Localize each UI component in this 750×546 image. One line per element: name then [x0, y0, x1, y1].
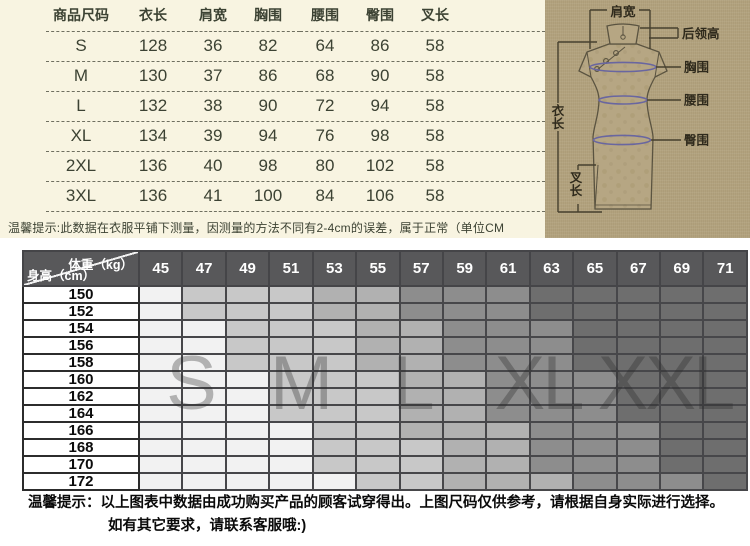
matrix-cell-xxl	[703, 456, 747, 473]
height-row-label: 160	[23, 371, 139, 388]
size-row: L1323890729458	[46, 91, 545, 121]
weight-col-header: 63	[530, 251, 573, 286]
size-table: 商品尺码衣长肩宽胸围腰围臀围叉长 S1283682648658M13037866…	[46, 0, 545, 212]
size-col-header: 商品尺码	[46, 0, 116, 31]
matrix-cell-xl	[486, 320, 529, 337]
height-row-label: 158	[23, 354, 139, 371]
matrix-cell-m	[313, 371, 356, 388]
matrix-cell-s	[139, 405, 182, 422]
size-cell: 2XL	[46, 151, 116, 181]
matrix-cell-s	[139, 354, 182, 371]
matrix-cell-l	[486, 422, 529, 439]
matrix-cell-xxl	[703, 371, 747, 388]
matrix-cell-xl	[617, 473, 660, 490]
matrix-cell-l	[400, 320, 443, 337]
matrix-row: 154	[23, 320, 747, 337]
matrix-row: 152	[23, 303, 747, 320]
matrix-cell-xxl	[660, 354, 703, 371]
matrix-cell-xl	[486, 371, 529, 388]
size-cell: 58	[410, 31, 460, 61]
size-cell: 102	[350, 151, 410, 181]
height-weight-matrix: 体重（kg） 身高（cm） 45474951535557596163656769…	[22, 250, 748, 491]
matrix-cell-s	[313, 473, 356, 490]
weight-col-header: 45	[139, 251, 182, 286]
size-cell: 76	[300, 121, 350, 151]
size-col-header: 叉长	[410, 0, 460, 31]
matrix-cell-s	[182, 337, 225, 354]
matrix-cell-l	[400, 388, 443, 405]
matrix-cell-m	[400, 473, 443, 490]
matrix-body: 150152154156158160162164166168170172	[23, 286, 747, 490]
size-cell: 84	[300, 181, 350, 211]
matrix-cell-m	[226, 303, 269, 320]
matrix-cell-m	[356, 422, 399, 439]
size-cell: 36	[190, 31, 236, 61]
matrix-corner-cell: 体重（kg） 身高（cm）	[23, 251, 139, 286]
matrix-cell-m	[269, 337, 312, 354]
matrix-cell-s	[139, 371, 182, 388]
matrix-cell-xxl	[703, 422, 747, 439]
matrix-cell-xl	[573, 405, 616, 422]
matrix-cell-xl	[660, 473, 703, 490]
size-cell: 132	[116, 91, 190, 121]
matrix-cell-m	[313, 354, 356, 371]
size-row: S1283682648658	[46, 31, 545, 61]
matrix-cell-m	[269, 405, 312, 422]
matrix-cell-s	[226, 439, 269, 456]
size-cell: 90	[350, 61, 410, 91]
matrix-cell-xl	[530, 388, 573, 405]
matrix-cell-xxl	[660, 371, 703, 388]
size-cell: 38	[190, 91, 236, 121]
size-cell: 80	[300, 151, 350, 181]
row-spacer	[460, 181, 545, 211]
matrix-cell-xxl	[660, 456, 703, 473]
size-cell: 58	[410, 181, 460, 211]
matrix-cell-s	[269, 439, 312, 456]
garment-length-label: 衣长	[552, 103, 565, 131]
matrix-cell-l	[443, 439, 486, 456]
size-row: 2XL13640988010258	[46, 151, 545, 181]
matrix-cell-s	[182, 371, 225, 388]
matrix-cell-m	[400, 456, 443, 473]
matrix-cell-xxl	[617, 303, 660, 320]
matrix-cell-xl	[573, 439, 616, 456]
height-row-label: 172	[23, 473, 139, 490]
matrix-cell-xl	[486, 303, 529, 320]
size-cell: 39	[190, 121, 236, 151]
matrix-cell-s	[182, 388, 225, 405]
matrix-cell-xxl	[703, 405, 747, 422]
matrix-cell-l	[486, 473, 529, 490]
height-row-label: 168	[23, 439, 139, 456]
matrix-cell-xl	[486, 286, 529, 303]
matrix-cell-m	[313, 405, 356, 422]
matrix-cell-xl	[486, 388, 529, 405]
matrix-row: 162	[23, 388, 747, 405]
weight-col-header: 53	[313, 251, 356, 286]
matrix-cell-l	[400, 422, 443, 439]
matrix-cell-s	[226, 456, 269, 473]
height-row-label: 166	[23, 422, 139, 439]
matrix-cell-m	[356, 473, 399, 490]
matrix-cell-xl	[443, 286, 486, 303]
size-cell: 68	[300, 61, 350, 91]
matrix-cell-l	[443, 371, 486, 388]
matrix-cell-xxl	[703, 354, 747, 371]
matrix-cell-s	[226, 422, 269, 439]
matrix-cell-l	[443, 405, 486, 422]
size-cell: 86	[350, 31, 410, 61]
size-col-header: 肩宽	[190, 0, 236, 31]
matrix-cell-xl	[530, 371, 573, 388]
matrix-cell-l	[486, 456, 529, 473]
matrix-cell-xl	[486, 354, 529, 371]
bust-label: 胸围	[684, 60, 709, 75]
matrix-cell-xxl	[617, 286, 660, 303]
waist-label: 腰围	[683, 93, 709, 108]
size-col-header: 腰围	[300, 0, 350, 31]
size-cell: 58	[410, 91, 460, 121]
footer-note-line1: 温馨提示：以上图表中数据由成功购买产品的顾客试穿得出。上图尺码仅供参考，请根据自…	[28, 492, 743, 515]
height-row-label: 162	[23, 388, 139, 405]
size-cell: 136	[116, 151, 190, 181]
matrix-row: 160	[23, 371, 747, 388]
matrix-cell-xl	[443, 320, 486, 337]
size-cell: 100	[236, 181, 300, 211]
qipao-dress-diagram: 肩宽 后领高 胸围 腰围 臀围 衣长 叉长	[545, 0, 750, 238]
row-spacer	[460, 121, 545, 151]
matrix-cell-l	[400, 337, 443, 354]
size-table-body: S1283682648658M1303786689058L13238907294…	[46, 31, 545, 211]
matrix-cell-l	[356, 303, 399, 320]
matrix-cell-s	[139, 388, 182, 405]
weight-col-header: 67	[617, 251, 660, 286]
collar-height-label: 后领高	[682, 26, 720, 41]
matrix-cell-m	[313, 456, 356, 473]
matrix-cell-l	[443, 456, 486, 473]
matrix-cell-s	[182, 354, 225, 371]
matrix-cell-xxl	[703, 473, 747, 490]
matrix-cell-l	[313, 303, 356, 320]
matrix-cell-xxl	[703, 388, 747, 405]
matrix-cell-s	[182, 320, 225, 337]
height-row-label: 156	[23, 337, 139, 354]
matrix-cell-s	[182, 439, 225, 456]
matrix-cell-l	[313, 286, 356, 303]
size-cell: 94	[236, 121, 300, 151]
matrix-cell-l	[356, 320, 399, 337]
size-cell: M	[46, 61, 116, 91]
size-cell: L	[46, 91, 116, 121]
weight-col-header: 51	[269, 251, 312, 286]
size-col-header: 胸围	[236, 0, 300, 31]
matrix-cell-s	[226, 371, 269, 388]
matrix-cell-s	[139, 473, 182, 490]
matrix-cell-l	[356, 337, 399, 354]
matrix-cell-xl	[443, 354, 486, 371]
matrix-cell-s	[226, 405, 269, 422]
size-table-header-row: 商品尺码衣长肩宽胸围腰围臀围叉长	[46, 0, 545, 31]
size-cell: 58	[410, 151, 460, 181]
matrix-cell-s	[226, 473, 269, 490]
matrix-cell-xxl	[703, 303, 747, 320]
matrix-cell-s	[226, 388, 269, 405]
matrix-cell-m	[226, 337, 269, 354]
matrix-row: 170	[23, 456, 747, 473]
matrix-cell-xl	[400, 303, 443, 320]
matrix-cell-xxl	[660, 320, 703, 337]
matrix-cell-xxl	[617, 320, 660, 337]
matrix-cell-s	[139, 286, 182, 303]
matrix-row: 166	[23, 422, 747, 439]
matrix-cell-l	[400, 354, 443, 371]
size-cell: 90	[236, 91, 300, 121]
size-col-header: 臀围	[350, 0, 410, 31]
matrix-cell-xl	[573, 473, 616, 490]
matrix-cell-m	[182, 303, 225, 320]
matrix-cell-xl	[617, 456, 660, 473]
matrix-cell-xl	[486, 337, 529, 354]
matrix-cell-xxl	[530, 286, 573, 303]
matrix-cell-m	[269, 303, 312, 320]
matrix-cell-xxl	[703, 337, 747, 354]
size-cell: 72	[300, 91, 350, 121]
dress-diagram-panel: 肩宽 后领高 胸围 腰围 臀围 衣长 叉长	[545, 0, 750, 238]
matrix-cell-m	[356, 456, 399, 473]
height-row-label: 170	[23, 456, 139, 473]
height-row-label: 150	[23, 286, 139, 303]
matrix-cell-xl	[443, 337, 486, 354]
matrix-cell-s	[182, 473, 225, 490]
matrix-row: 168	[23, 439, 747, 456]
matrix-cell-xl	[573, 388, 616, 405]
matrix-cell-s	[139, 303, 182, 320]
shoulder-width-label: 肩宽	[610, 4, 636, 19]
matrix-cell-xxl	[573, 286, 616, 303]
matrix-cell-xl	[443, 303, 486, 320]
size-cell: 136	[116, 181, 190, 211]
row-spacer	[460, 31, 545, 61]
size-cell: 58	[410, 61, 460, 91]
size-cell: 37	[190, 61, 236, 91]
matrix-cell-xl	[486, 405, 529, 422]
matrix-cell-l	[530, 473, 573, 490]
matrix-cell-xxl	[660, 388, 703, 405]
measurement-section: 商品尺码衣长肩宽胸围腰围臀围叉长 S1283682648658M13037866…	[0, 0, 750, 238]
matrix-cell-s	[182, 422, 225, 439]
weight-col-header: 71	[703, 251, 747, 286]
matrix-cell-m	[313, 439, 356, 456]
matrix-cell-xl	[617, 439, 660, 456]
matrix-cell-m	[226, 286, 269, 303]
size-cell: 106	[350, 181, 410, 211]
matrix-cell-xxl	[617, 405, 660, 422]
weight-col-header: 57	[400, 251, 443, 286]
matrix-cell-xl	[530, 405, 573, 422]
matrix-cell-l	[356, 286, 399, 303]
matrix-cell-s	[139, 422, 182, 439]
matrix-cell-xxl	[660, 286, 703, 303]
matrix-cell-xxl	[573, 337, 616, 354]
matrix-cell-l	[443, 388, 486, 405]
size-cell: 130	[116, 61, 190, 91]
matrix-row: 172	[23, 473, 747, 490]
matrix-row: 164	[23, 405, 747, 422]
matrix-row: 156	[23, 337, 747, 354]
size-matrix-section: 体重（kg） 身高（cm） 45474951535557596163656769…	[22, 250, 748, 491]
matrix-cell-xxl	[617, 337, 660, 354]
matrix-cell-xl	[573, 456, 616, 473]
matrix-cell-xl	[617, 422, 660, 439]
matrix-cell-m	[226, 354, 269, 371]
matrix-cell-l	[443, 422, 486, 439]
matrix-cell-xl	[400, 286, 443, 303]
matrix-row: 158	[23, 354, 747, 371]
matrix-cell-xl	[530, 422, 573, 439]
matrix-cell-m	[400, 439, 443, 456]
matrix-cell-xxl	[573, 320, 616, 337]
matrix-cell-m	[356, 388, 399, 405]
weight-col-header: 65	[573, 251, 616, 286]
row-spacer	[460, 151, 545, 181]
matrix-cell-xl	[573, 371, 616, 388]
size-cell: 98	[350, 121, 410, 151]
size-cell: XL	[46, 121, 116, 151]
weight-col-header: 49	[226, 251, 269, 286]
size-cell: 86	[236, 61, 300, 91]
size-cell: 64	[300, 31, 350, 61]
size-row: 3XL136411008410658	[46, 181, 545, 211]
size-cell: 82	[236, 31, 300, 61]
matrix-cell-xxl	[703, 439, 747, 456]
size-cell: 58	[410, 121, 460, 151]
matrix-cell-m	[269, 371, 312, 388]
matrix-cell-xxl	[703, 320, 747, 337]
matrix-cell-m	[269, 388, 312, 405]
hip-label: 臀围	[684, 133, 709, 148]
measurement-note: 温馨提示:此数据在衣服平铺下测量，因测量的方法不同有2-4cm的误差，属于正常（…	[8, 219, 543, 236]
matrix-cell-l	[400, 371, 443, 388]
weight-col-header: 69	[660, 251, 703, 286]
size-cell: 128	[116, 31, 190, 61]
matrix-cell-m	[182, 286, 225, 303]
weight-col-header: 59	[443, 251, 486, 286]
height-row-label: 154	[23, 320, 139, 337]
size-cell: 40	[190, 151, 236, 181]
matrix-cell-m	[313, 337, 356, 354]
matrix-cell-l	[356, 354, 399, 371]
size-cell: 94	[350, 91, 410, 121]
matrix-cell-xxl	[703, 286, 747, 303]
matrix-cell-xl	[530, 456, 573, 473]
matrix-cell-m	[356, 405, 399, 422]
matrix-cell-s	[139, 439, 182, 456]
matrix-cell-m	[313, 320, 356, 337]
matrix-cell-m	[356, 439, 399, 456]
size-row: M1303786689058	[46, 61, 545, 91]
row-spacer	[460, 91, 545, 121]
matrix-cell-xl	[530, 320, 573, 337]
matrix-cell-xxl	[660, 337, 703, 354]
matrix-cell-s	[139, 456, 182, 473]
height-axis-label: 身高（cm）	[27, 265, 95, 284]
matrix-cell-s	[269, 422, 312, 439]
size-chart-page: 商品尺码衣长肩宽胸围腰围臀围叉长 S1283682648658M13037866…	[0, 0, 750, 546]
matrix-cell-l	[400, 405, 443, 422]
matrix-cell-xxl	[617, 371, 660, 388]
size-cell: 41	[190, 181, 236, 211]
matrix-cell-xl	[530, 354, 573, 371]
header-spacer	[460, 0, 545, 31]
size-col-header: 衣长	[116, 0, 190, 31]
size-row: XL1343994769858	[46, 121, 545, 151]
matrix-cell-xxl	[573, 303, 616, 320]
matrix-cell-xxl	[660, 303, 703, 320]
matrix-cell-m	[313, 422, 356, 439]
matrix-cell-xl	[530, 337, 573, 354]
matrix-cell-l	[486, 439, 529, 456]
matrix-cell-m	[313, 388, 356, 405]
matrix-cell-m	[269, 354, 312, 371]
matrix-cell-xxl	[617, 354, 660, 371]
matrix-cell-xxl	[617, 388, 660, 405]
matrix-row: 150	[23, 286, 747, 303]
matrix-cell-l	[443, 473, 486, 490]
matrix-cell-xxl	[530, 303, 573, 320]
slit-length-label: 叉长	[569, 171, 583, 198]
footer-note-line2: 如有其它要求，请联系客服哦:)	[28, 515, 743, 538]
matrix-cell-m	[269, 286, 312, 303]
size-cell: S	[46, 31, 116, 61]
matrix-cell-s	[182, 456, 225, 473]
height-row-label: 164	[23, 405, 139, 422]
matrix-cell-xxl	[573, 354, 616, 371]
matrix-cell-s	[139, 320, 182, 337]
matrix-cell-s	[182, 405, 225, 422]
size-cell: 3XL	[46, 181, 116, 211]
matrix-cell-xl	[573, 422, 616, 439]
matrix-cell-m	[226, 320, 269, 337]
weight-col-header: 61	[486, 251, 529, 286]
size-cell: 98	[236, 151, 300, 181]
matrix-cell-m	[356, 371, 399, 388]
matrix-cell-m	[269, 320, 312, 337]
matrix-cell-xxl	[660, 405, 703, 422]
weight-col-header: 47	[182, 251, 225, 286]
matrix-cell-xxl	[660, 422, 703, 439]
matrix-header-row: 体重（kg） 身高（cm） 45474951535557596163656769…	[23, 251, 747, 286]
matrix-cell-s	[269, 473, 312, 490]
height-row-label: 152	[23, 303, 139, 320]
footer-notes: 温馨提示：以上图表中数据由成功购买产品的顾客试穿得出。上图尺码仅供参考，请根据自…	[28, 492, 743, 538]
weight-col-header: 55	[356, 251, 399, 286]
matrix-cell-s	[139, 337, 182, 354]
matrix-cell-xl	[530, 439, 573, 456]
collar-height-bracket	[640, 28, 678, 38]
size-cell: 134	[116, 121, 190, 151]
row-spacer	[460, 61, 545, 91]
matrix-cell-s	[269, 456, 312, 473]
matrix-cell-xxl	[660, 439, 703, 456]
